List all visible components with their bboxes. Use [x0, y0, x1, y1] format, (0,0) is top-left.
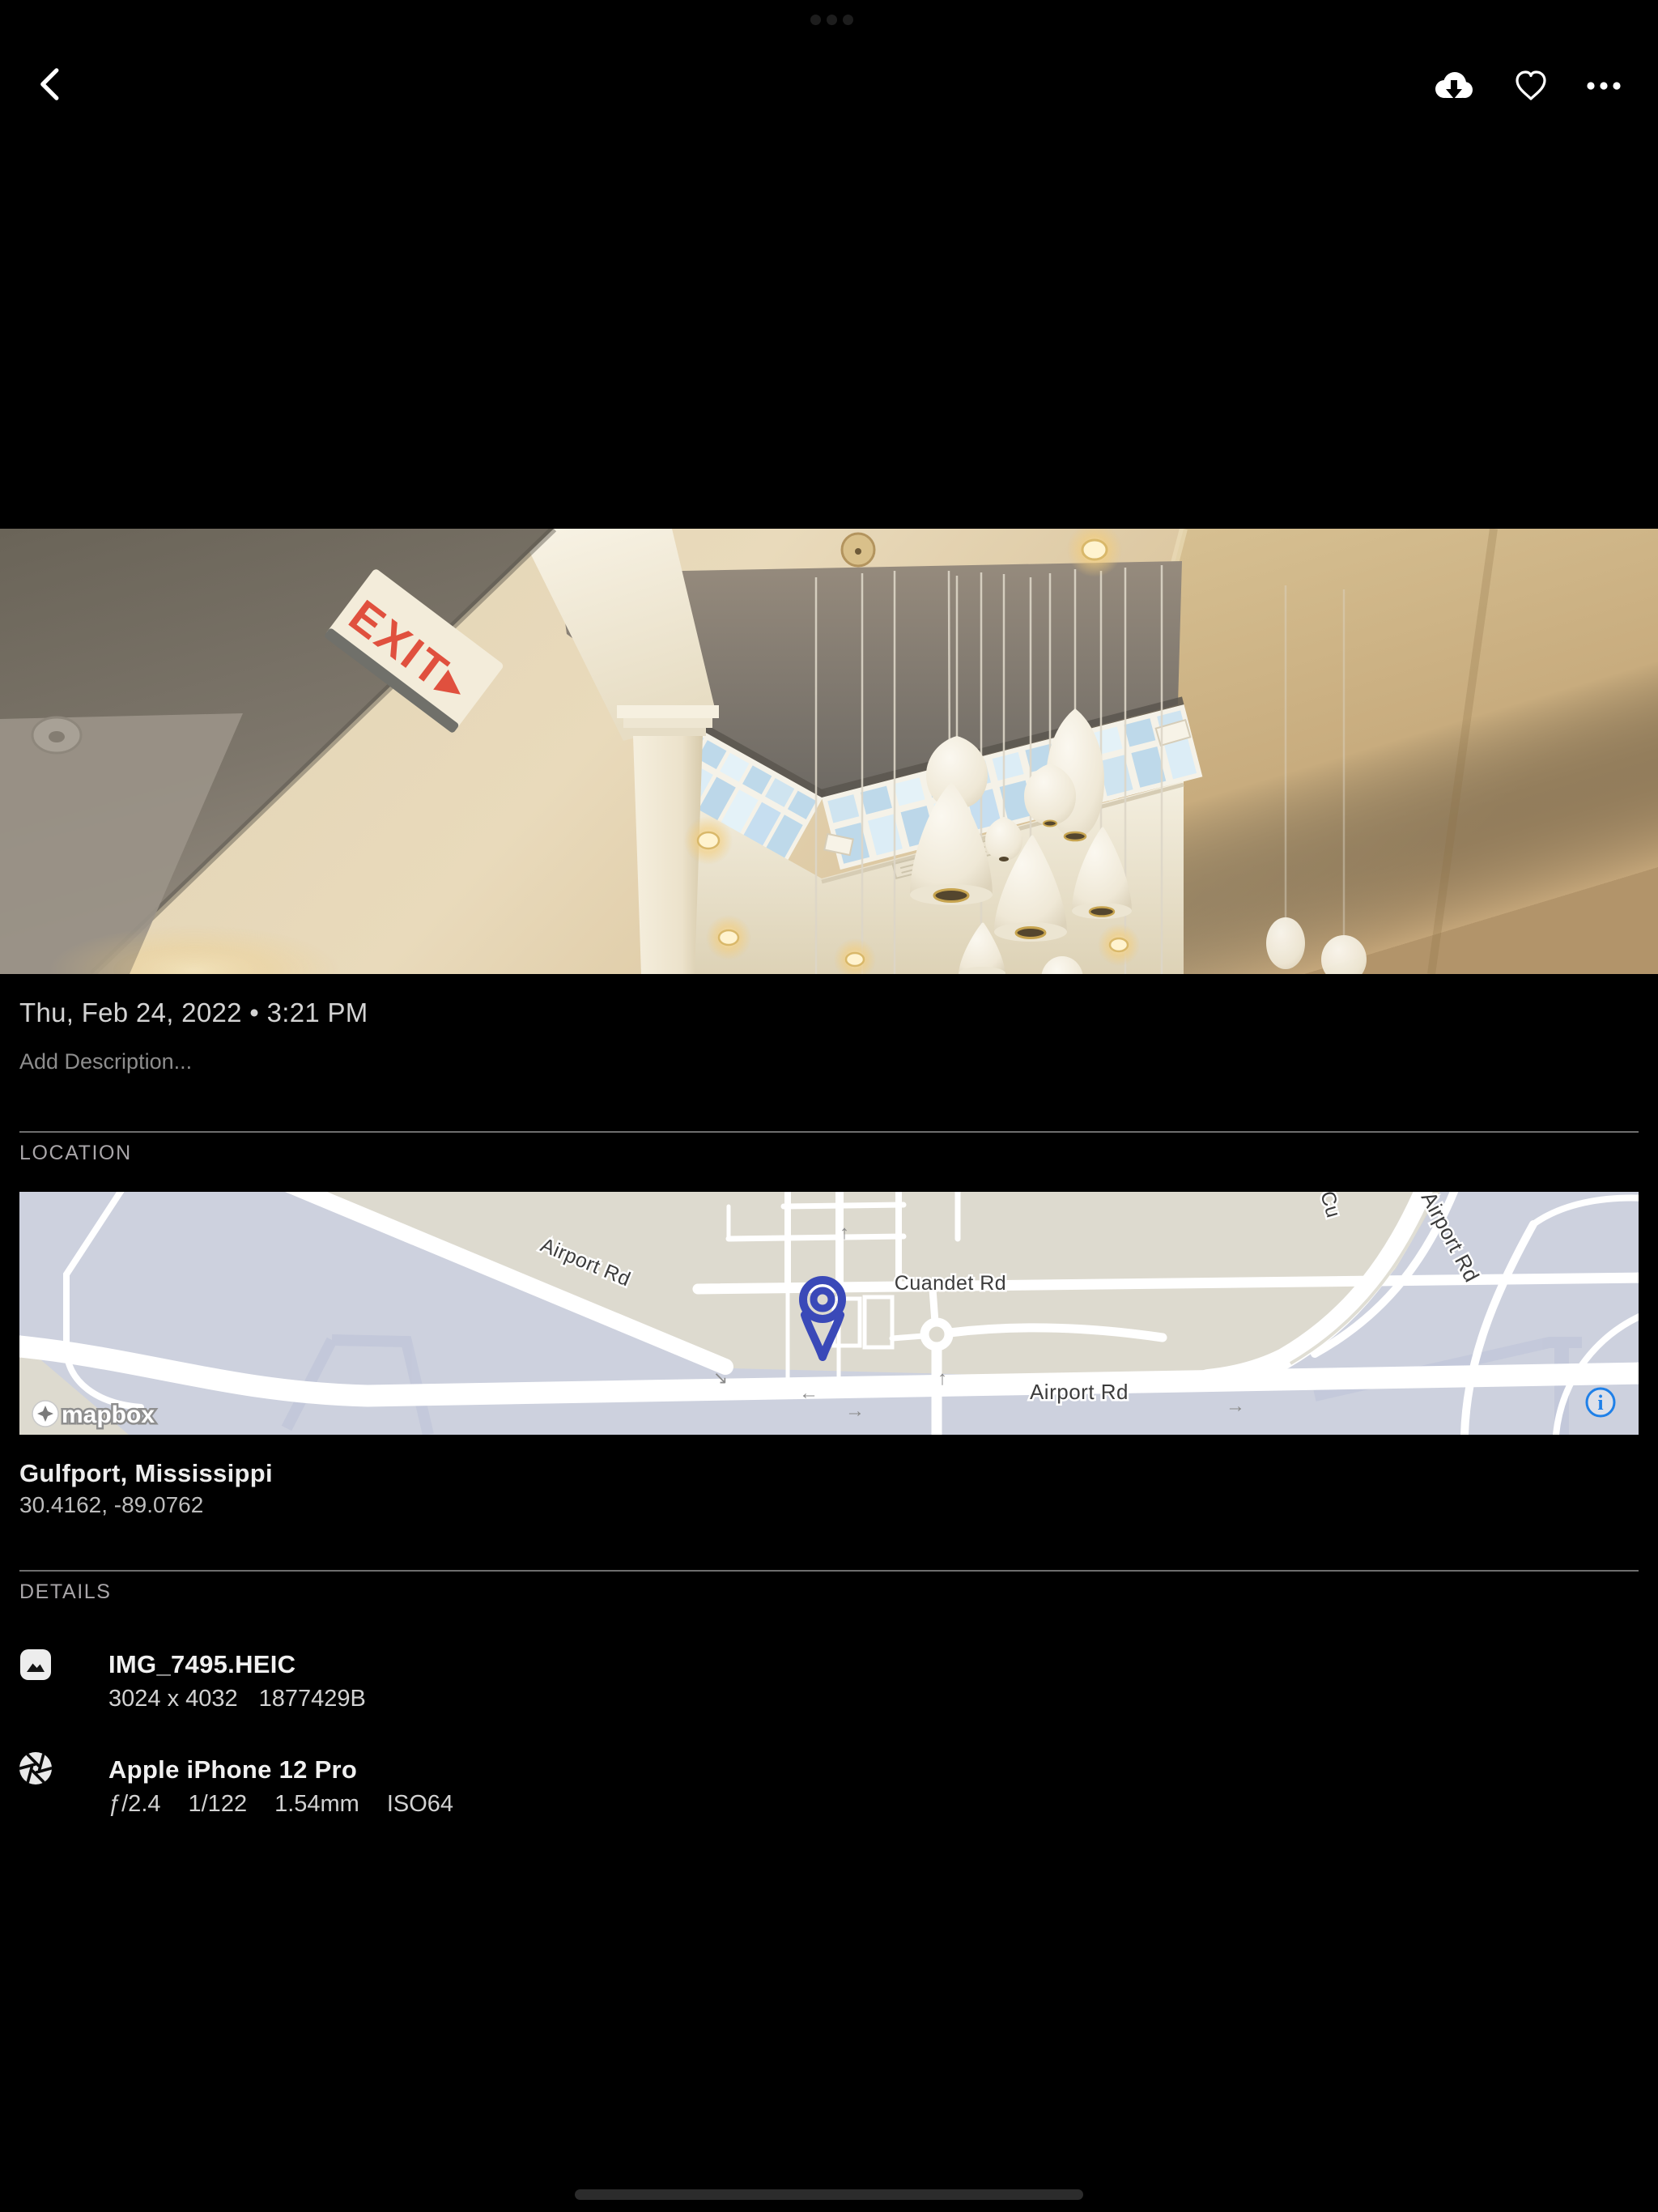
location-coordinates: 30.4162, -89.0762	[19, 1492, 203, 1518]
file-name: IMG_7495.HEIC	[108, 1650, 295, 1679]
details-header: DETAILS	[19, 1580, 112, 1604]
divider	[19, 1131, 1639, 1133]
description-input[interactable]: Add Description...	[19, 1049, 192, 1074]
divider	[19, 1570, 1639, 1572]
file-subinfo: 3024 x 4032 1877429B	[108, 1686, 366, 1712]
info-button[interactable]: i	[1587, 1389, 1614, 1416]
ellipsis-icon	[1584, 68, 1624, 106]
svg-text:←: ←	[799, 1382, 818, 1404]
cloud-download-icon	[1431, 67, 1476, 107]
camera-shutter: 1/122	[189, 1791, 248, 1818]
camera-aperture: ƒ/2.4	[108, 1791, 161, 1818]
favorite-button[interactable]	[1507, 65, 1554, 108]
image-icon	[19, 1648, 52, 1685]
map-roundabout	[925, 1322, 949, 1346]
photo-datetime: Thu, Feb 24, 2022 • 3:21 PM	[19, 998, 368, 1028]
heart-icon	[1511, 66, 1550, 108]
label-cuandet-rd: Cuandet Rd	[895, 1272, 1006, 1295]
file-dimensions: 3024 x 4032	[108, 1686, 238, 1712]
camera-name: Apple iPhone 12 Pro	[108, 1755, 357, 1784]
aperture-icon	[18, 1750, 53, 1790]
label-airport-rd-horizontal: Airport Rd	[1030, 1380, 1129, 1404]
photo-detail-screen: EXIT▸ Thu, Feb 24, 2022 • 3:21 PM Add De…	[0, 0, 1658, 2212]
download-button[interactable]	[1430, 65, 1477, 108]
camera-focal-length: 1.54mm	[274, 1791, 359, 1818]
back-button[interactable]	[28, 63, 74, 107]
location-map[interactable]: ← → → ↑ ↑ ↘ Airport Rd Cuandet Rd Airpor…	[19, 1192, 1639, 1435]
svg-text:→: →	[1226, 1395, 1245, 1417]
location-header: LOCATION	[19, 1142, 132, 1165]
location-place: Gulfport, Mississippi	[19, 1459, 273, 1488]
photo-viewer[interactable]: EXIT▸	[0, 529, 1658, 974]
svg-text:↑: ↑	[937, 1368, 947, 1389]
camera-iso: ISO64	[387, 1791, 453, 1818]
multitask-dots-icon[interactable]	[810, 15, 853, 25]
chevron-left-icon	[33, 65, 69, 106]
camera-subinfo: ƒ/2.4 1/122 1.54mm ISO64	[108, 1791, 453, 1818]
svg-text:→: →	[845, 1400, 865, 1422]
svg-text:↑: ↑	[840, 1222, 849, 1244]
file-size: 1877429B	[259, 1686, 366, 1712]
svg-text:mapbox: mapbox	[62, 1402, 155, 1428]
more-button[interactable]	[1580, 65, 1627, 108]
svg-text:↘: ↘	[713, 1368, 728, 1388]
mapbox-logo[interactable]: mapbox	[32, 1401, 155, 1428]
info-icon: i	[1597, 1391, 1603, 1414]
home-indicator[interactable]	[575, 2189, 1083, 2200]
